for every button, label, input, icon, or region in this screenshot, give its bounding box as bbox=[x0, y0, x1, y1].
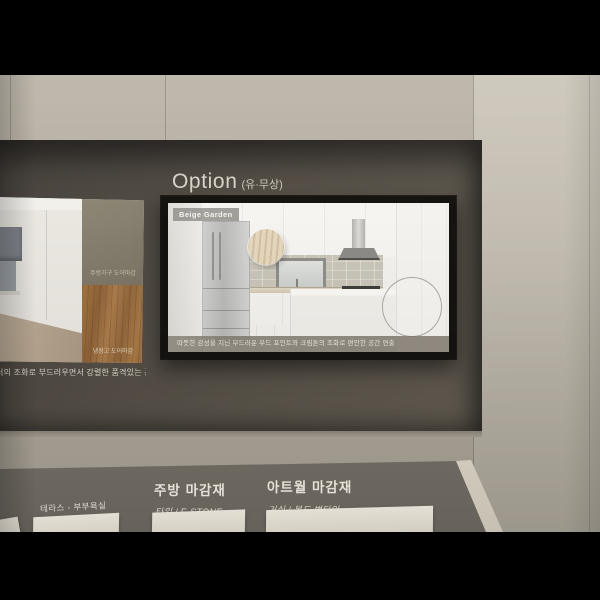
screen-caption: 따뜻한 감성을 지닌 부드러운 우드 포인트와 크림톤의 조화로 편안한 공간 … bbox=[168, 336, 449, 352]
thumb-countertop bbox=[0, 291, 20, 295]
showroom-photo: Option(유·무상) Beige Garden 따뜻한 감성을 지닌 부드러… bbox=[0, 75, 600, 532]
wall-seam bbox=[165, 75, 166, 141]
niche-sill bbox=[0, 431, 482, 437]
door-finish-swatch: 주방가구 도어마감 bbox=[82, 197, 144, 285]
thumb-upper-cabinet bbox=[0, 227, 22, 261]
option-heading: Option(유·무상) bbox=[172, 170, 283, 194]
option-title: Option bbox=[172, 170, 237, 193]
refrigerator bbox=[202, 221, 250, 343]
sample-tile bbox=[33, 513, 119, 532]
thumb-wood-floor bbox=[0, 297, 82, 363]
wall-seam bbox=[589, 75, 590, 532]
range-hood-chimney bbox=[352, 219, 365, 249]
door-finish-label: 주방가구 도어마감 bbox=[82, 268, 144, 277]
sample-tile bbox=[266, 506, 433, 532]
fridge-door-finish-label: 냉장고 도어마감 bbox=[82, 346, 144, 355]
board-section-artwall-title: 아트월 마감재 bbox=[267, 476, 352, 496]
letterbox-top bbox=[0, 0, 600, 75]
tv-frame: Beige Garden 따뜻한 감성을 지닌 부드러운 우드 포인트와 크림톤… bbox=[161, 196, 456, 359]
thumb-ceiling bbox=[0, 197, 82, 210]
kitchen-left-cabinet bbox=[168, 203, 203, 352]
wood-material-callout bbox=[248, 229, 284, 265]
panel-caption: 러의 조화로 부드러우면서 강렬한 품격있는 공간 연출 bbox=[0, 367, 146, 378]
thumb-wall-corner bbox=[46, 210, 47, 320]
range-hood bbox=[338, 248, 380, 260]
option-subtitle: (유·무상) bbox=[241, 179, 282, 191]
thumb-lower-cabinet bbox=[0, 261, 16, 291]
sample-tile bbox=[152, 509, 245, 532]
scheme-name-badge: Beige Garden bbox=[173, 208, 239, 221]
wall-panel-right bbox=[473, 75, 600, 532]
material-sample-panel: 주방가구 도어마감 냉장고 도어마감 bbox=[0, 197, 144, 363]
fridge-door-finish-swatch: 냉장고 도어마감 bbox=[82, 285, 144, 363]
kitchen-window bbox=[276, 258, 326, 290]
wall-seam bbox=[10, 75, 11, 141]
letterbox-bottom bbox=[0, 532, 600, 600]
board-section-kitchen-title: 주방 마감재 bbox=[154, 479, 226, 499]
material-circle-callout bbox=[382, 277, 442, 337]
tv-screen: Beige Garden 따뜻한 감성을 지닌 부드러운 우드 포인트와 크림톤… bbox=[168, 203, 449, 352]
